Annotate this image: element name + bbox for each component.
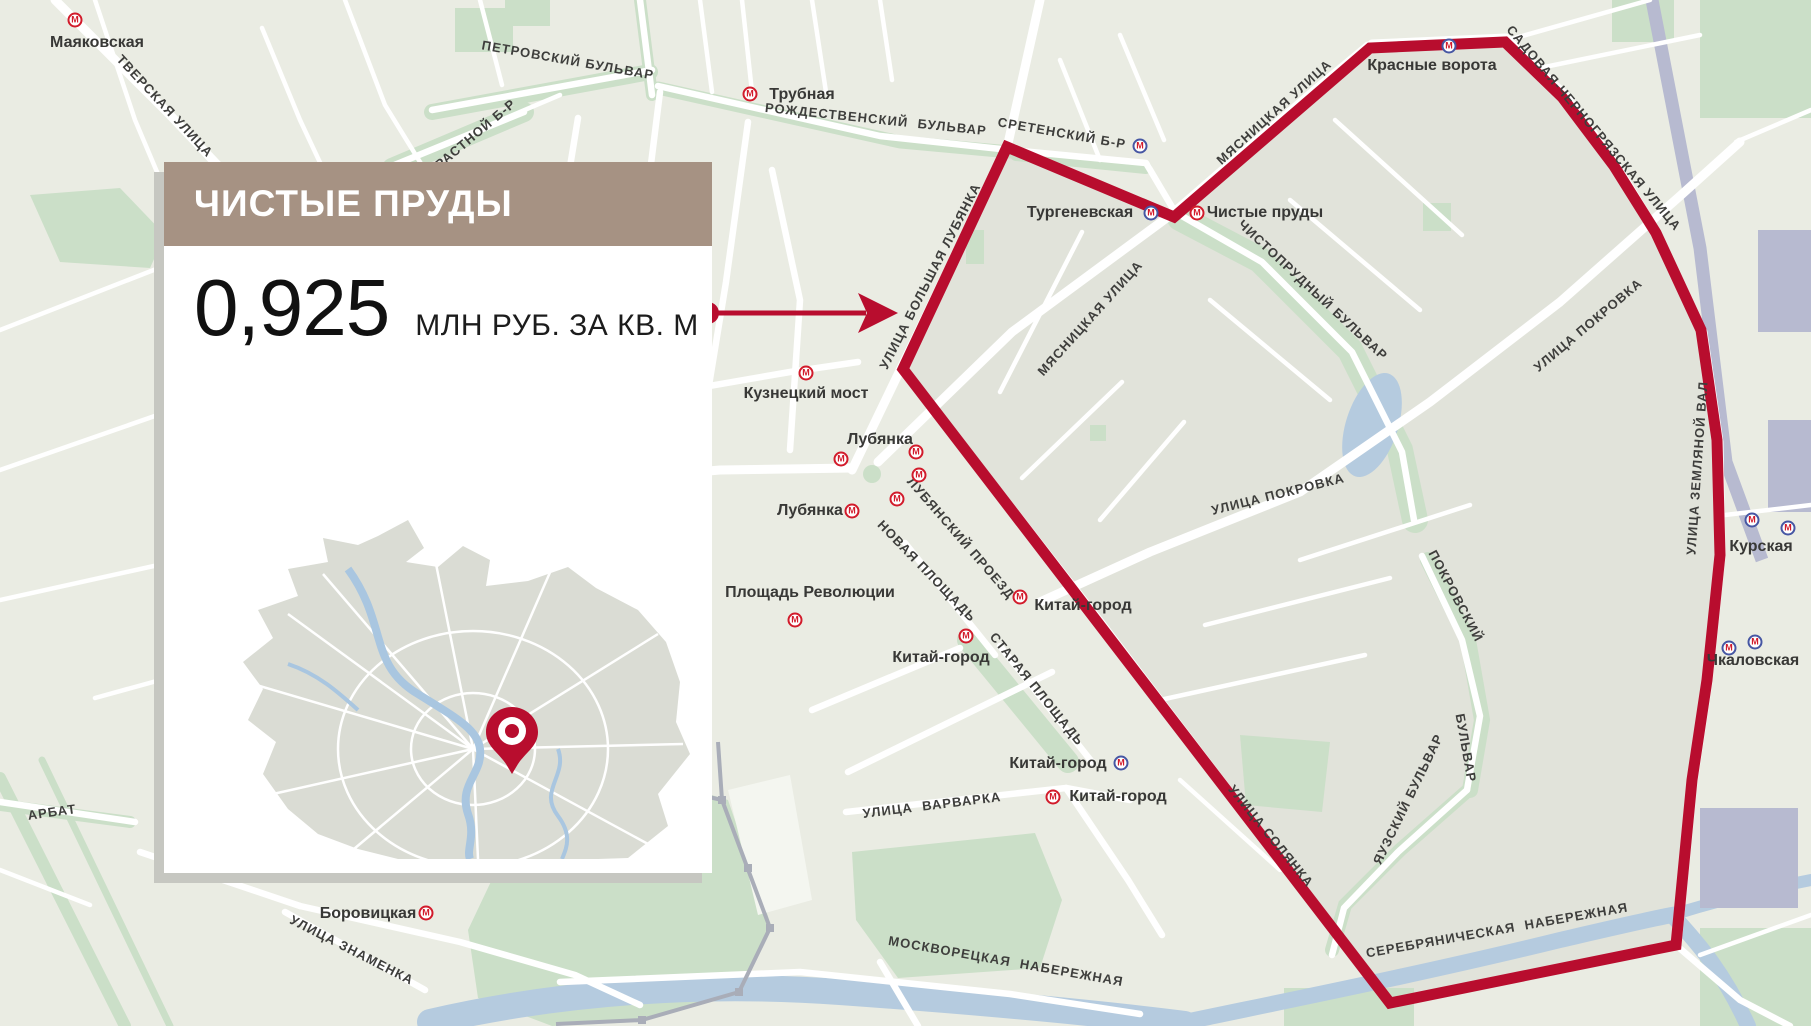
metro-icon: М [1781, 521, 1796, 536]
price-value: 0,925 [194, 268, 389, 348]
map-canvas: ТВЕРСКАЯ УЛИЦАПЕТРОВСКИЙ БУЛЬВАРСТРАСТНО… [0, 0, 1811, 1026]
metro-icon: М [799, 366, 814, 381]
metro-station-label: Трубная [769, 87, 834, 103]
metro-station-label: Боровицкая [320, 906, 417, 922]
metro-icon: М [1722, 641, 1737, 656]
metro-icon: М [1190, 206, 1205, 221]
metro-station-label: Маяковская [50, 35, 144, 51]
metro-icon: М [1046, 790, 1061, 805]
moscow-minimap [228, 514, 698, 859]
district-title: ЧИСТЫЕ ПРУДЫ [164, 183, 513, 225]
metro-station-label: Площадь Революции [725, 585, 895, 601]
metro-icon: М [890, 492, 905, 507]
metro-station-label: Китай-город [1034, 598, 1131, 614]
metro-station-label: Китай-город [892, 650, 989, 666]
metro-station-label: Красные ворота [1367, 58, 1496, 74]
metro-icon: М [788, 613, 803, 628]
metro-icon: М [1114, 756, 1129, 771]
metro-icon: М [959, 629, 974, 644]
metro-station-label: Китай-город [1009, 756, 1106, 772]
metro-icon: М [68, 13, 83, 28]
metro-station-label: Тургеневская [1027, 205, 1133, 221]
metro-icon: М [1144, 206, 1159, 221]
price-row: 0,925 МЛН РУБ. ЗА КВ. М [164, 246, 712, 348]
metro-station-label: Курская [1729, 539, 1792, 555]
metro-station-label: Китай-город [1069, 789, 1166, 805]
metro-icon: М [743, 87, 758, 102]
metro-icon: М [1442, 39, 1457, 54]
metro-icon: М [909, 445, 924, 460]
metro-station-label: Чистые пруды [1207, 205, 1323, 221]
district-info-card: ЧИСТЫЕ ПРУДЫ 0,925 МЛН РУБ. ЗА КВ. М [164, 162, 712, 873]
metro-icon: М [912, 468, 927, 483]
card-header: ЧИСТЫЕ ПРУДЫ [164, 162, 712, 246]
metro-station-label: Лубянка [847, 432, 913, 448]
metro-station-label: Чкаловская [1707, 653, 1799, 669]
metro-station-label: Лубянка [777, 503, 843, 519]
metro-icon: М [419, 906, 434, 921]
metro-icon: М [845, 504, 860, 519]
metro-station-label: Кузнецкий мост [744, 386, 869, 402]
metro-icon: М [1013, 590, 1028, 605]
metro-icon: М [1133, 139, 1148, 154]
metro-icon: М [834, 452, 849, 467]
price-unit: МЛН РУБ. ЗА КВ. М [415, 309, 699, 343]
metro-icon: М [1748, 635, 1763, 650]
metro-icon: М [1745, 513, 1760, 528]
